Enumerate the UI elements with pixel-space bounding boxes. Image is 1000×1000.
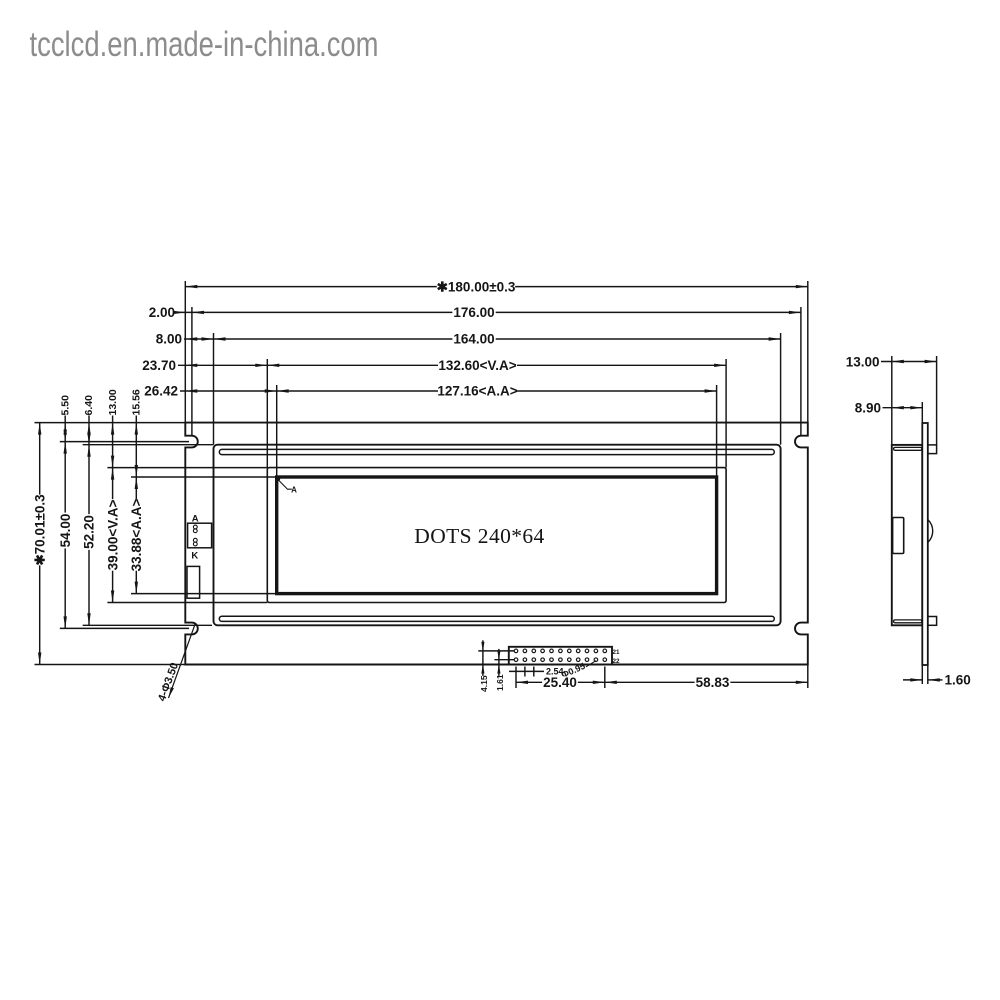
svg-text:58.83: 58.83 (696, 675, 730, 690)
svg-text:K: K (191, 551, 198, 562)
svg-text:8.00: 8.00 (156, 332, 182, 347)
svg-text:21: 21 (613, 649, 621, 656)
svg-text:6.40: 6.40 (83, 395, 95, 416)
svg-text:5.50: 5.50 (59, 395, 71, 416)
svg-text:176.00: 176.00 (453, 305, 494, 320)
svg-text:1.61: 1.61 (495, 674, 505, 691)
svg-text:1.60: 1.60 (945, 673, 971, 688)
svg-text:A: A (291, 486, 297, 495)
svg-text:tcclcd.en.made-in-china.com: tcclcd.en.made-in-china.com (30, 25, 379, 64)
svg-text:52.20: 52.20 (82, 515, 97, 549)
svg-text:4-Φ3.50: 4-Φ3.50 (156, 661, 181, 703)
svg-text:164.00: 164.00 (453, 332, 494, 347)
svg-text:4.15: 4.15 (479, 675, 489, 692)
svg-text:33.88<A.A>: 33.88<A.A> (129, 498, 144, 571)
svg-text:127.16<A.A>: 127.16<A.A> (437, 384, 517, 399)
svg-text:13.00: 13.00 (846, 354, 880, 369)
svg-text:22: 22 (613, 658, 621, 665)
svg-text:8.90: 8.90 (855, 400, 881, 415)
svg-text:15.56: 15.56 (131, 389, 143, 415)
svg-text:39.00<V.A>: 39.00<V.A> (105, 499, 120, 570)
svg-text:54.00: 54.00 (58, 514, 73, 548)
svg-text:13.00: 13.00 (107, 389, 119, 415)
svg-text:2.00: 2.00 (149, 305, 175, 320)
svg-text:✱70.01±0.3: ✱70.01±0.3 (32, 494, 47, 566)
svg-text:23.70: 23.70 (142, 358, 176, 373)
svg-text:DOTS 240*64: DOTS 240*64 (414, 524, 544, 548)
svg-text:✱180.00±0.3: ✱180.00±0.3 (437, 279, 516, 294)
svg-text:132.60<V.A>: 132.60<V.A> (438, 358, 516, 373)
svg-text:26.42: 26.42 (144, 384, 178, 399)
svg-text:A: A (192, 513, 199, 524)
svg-text:25.40: 25.40 (543, 675, 577, 690)
